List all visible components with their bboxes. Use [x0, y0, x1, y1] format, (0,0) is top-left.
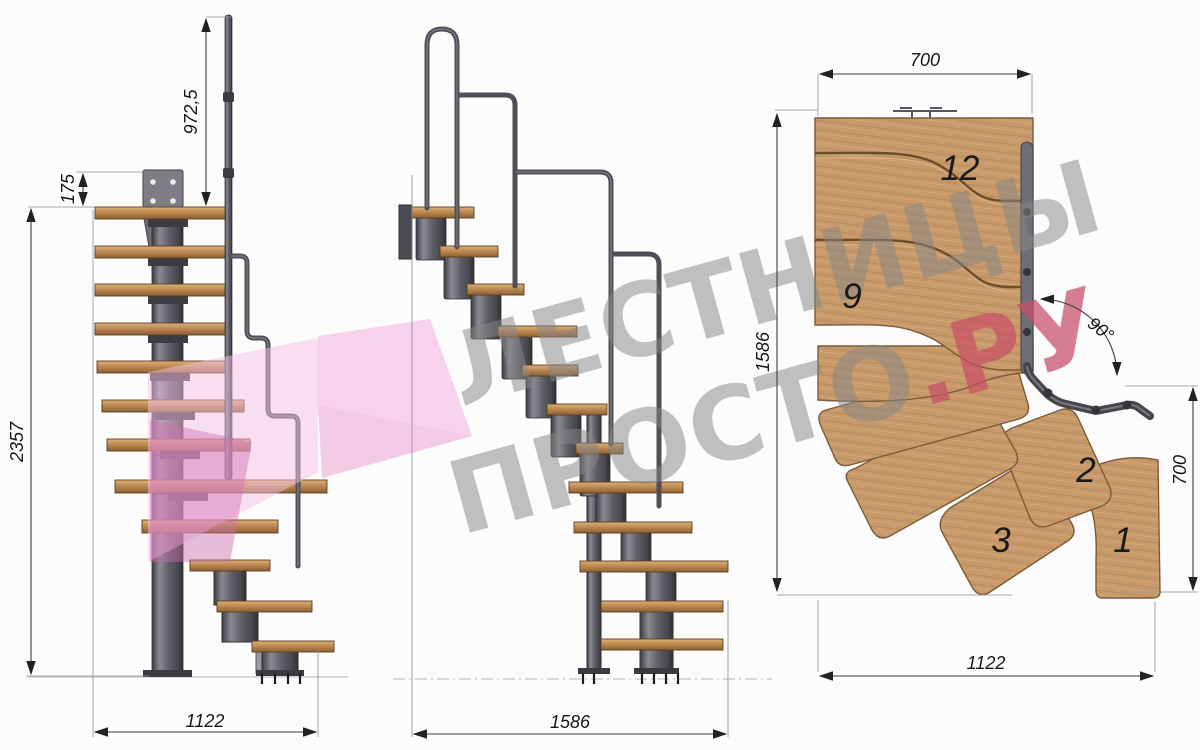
step-label-2: 2: [1075, 451, 1095, 490]
dimension-annotations: 972,5 175 2357 1122 1586 700 1586 90° 70…: [0, 0, 1200, 750]
step-label-3: 3: [991, 521, 1011, 560]
step-label-1: 1: [1113, 521, 1132, 560]
dim-plan-length: 1586: [753, 331, 773, 372]
dim-plate-offset: 175: [58, 173, 78, 204]
extension-lines: [26, 17, 1198, 737]
dim-rail-height: 972,5: [181, 88, 201, 134]
step-label-12: 12: [941, 149, 980, 188]
dim-lower-width: 700: [1170, 455, 1190, 485]
dimension-lines: [31, 19, 1193, 734]
staircase-drawing-page: ЛЕСТНИЦЫ ПРОСТО.РУ: [0, 0, 1200, 750]
dim-plan-width: 1122: [967, 653, 1006, 673]
dim-total-height: 2357: [7, 421, 27, 463]
dim-front-width: 1122: [186, 711, 225, 731]
step-label-9: 9: [842, 277, 861, 316]
dim-turn-angle: 90°: [1084, 313, 1118, 346]
dim-landing-width: 700: [910, 50, 940, 70]
dim-side-length: 1586: [550, 712, 591, 732]
